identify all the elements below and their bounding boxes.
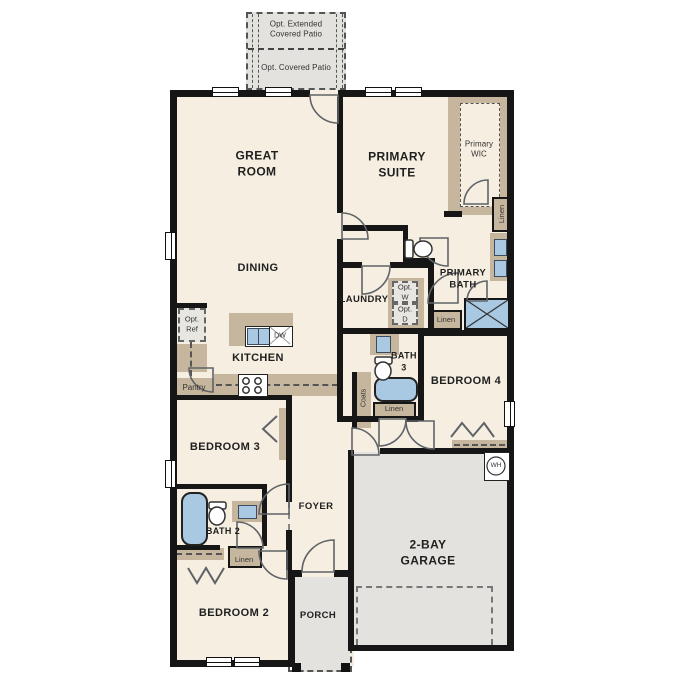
bath3-sink <box>376 336 391 353</box>
wall-center-upper <box>337 97 343 213</box>
bath2-tub <box>181 492 208 546</box>
wall-bedroom3-bath2 <box>170 484 267 489</box>
window-bedroom4 <box>504 401 515 427</box>
bedroom3-label: BEDROOM 3 <box>190 440 260 454</box>
bedroom4-label: BEDROOM 4 <box>431 374 501 388</box>
wall-foyer-left-a <box>286 400 292 502</box>
wall-bedroom2-right <box>288 570 295 667</box>
foyer-label: FOYER <box>299 501 334 513</box>
window-bedroom2-1 <box>206 657 232 667</box>
patio-covered-label: Opt. Covered Patio <box>261 63 331 73</box>
opt-ref-label: Opt. Ref <box>185 314 199 334</box>
primary-wic-label: Primary WIC <box>465 140 493 161</box>
porch-post-right <box>341 663 350 672</box>
water-heater-label: WH <box>491 462 502 470</box>
bath3-tub <box>374 377 418 402</box>
bath3-label: BATH 3 <box>391 350 417 373</box>
wall-bath2-right <box>262 489 267 546</box>
wall-coats-left <box>352 372 357 428</box>
window-primary-suite-2 <box>395 87 422 97</box>
linen-wic-label: Linen <box>497 205 507 223</box>
bath2-label: BATH 2 <box>206 526 240 538</box>
wall-garage-bottom <box>348 645 514 651</box>
linen-hall-label: Linen <box>385 404 403 414</box>
garage-label: 2-BAY GARAGE <box>400 537 455 568</box>
bedroom2-label: BEDROOM 2 <box>199 606 269 620</box>
opt-dryer-label: Opt. D <box>398 304 412 324</box>
linen-primary-bath-label: Linen <box>437 315 455 325</box>
window-great-room-1 <box>212 87 239 97</box>
wall-bath3-bottom-b <box>406 416 418 422</box>
bedroom4-closet-dashed-line <box>454 444 505 446</box>
primary-suite-label: PRIMARY SUITE <box>368 149 426 180</box>
counter-dashed-line <box>216 384 338 386</box>
wall-garage-left <box>348 450 354 651</box>
window-primary-suite-1 <box>365 87 392 97</box>
wall-left <box>170 90 177 667</box>
wall-laundry-top-a <box>337 262 362 268</box>
patio-post-line-right <box>336 14 343 88</box>
primary-sink-2 <box>494 260 507 277</box>
wall-front-left <box>292 570 302 577</box>
laundry-label: LAUNDRY <box>340 294 389 306</box>
dining-label: DINING <box>238 261 279 275</box>
kitchen-label: KITCHEN <box>232 351 284 365</box>
great-room-label: GREAT ROOM <box>235 148 278 179</box>
primary-bath-label: PRIMARY BATH <box>440 268 486 293</box>
coats-label: Coats <box>359 389 368 407</box>
pantry-cabinet <box>177 344 207 372</box>
primary-sink-1 <box>494 239 507 256</box>
window-great-room-2 <box>265 87 292 97</box>
pantry-label: Pantry <box>182 383 205 393</box>
stove <box>238 374 268 397</box>
wall-right <box>507 90 514 651</box>
patio-post-line-left <box>252 14 259 88</box>
garage-door-dashed-outline <box>356 586 493 645</box>
porch-label: PORCH <box>300 610 336 622</box>
wall-suite-bath <box>343 225 405 231</box>
window-bedroom3 <box>165 460 176 488</box>
wall-bedroom2-bottom <box>170 660 295 667</box>
wall-laundry-right <box>428 262 434 334</box>
pantry-dashed-line <box>190 342 192 376</box>
wall-wic-bottom <box>444 211 462 217</box>
bath2-sink <box>238 505 257 519</box>
window-dining <box>165 232 176 260</box>
wall-foyer-left-b <box>286 530 292 570</box>
linen-bath2-label: Linen <box>235 555 253 565</box>
patio-extended-label: Opt. Extended Covered Patio <box>270 20 322 41</box>
patio-divider-line <box>248 48 344 50</box>
wall-bedroom4-left <box>418 330 424 421</box>
dishwasher-label: DW <box>274 331 286 340</box>
opt-washer-label: Opt. W <box>398 282 412 302</box>
primary-shower <box>464 298 510 330</box>
wall-kitchen-bedroom3 <box>170 395 292 400</box>
floor-plan: Opt. Extended Covered Patio Opt. Covered… <box>0 0 687 687</box>
wall-bath3-bottom-a <box>343 416 379 422</box>
wall-refrigerator-stub <box>177 303 207 308</box>
bedroom2-closet-dashed-line <box>176 553 222 555</box>
window-bedroom2-2 <box>234 657 260 667</box>
hall-opening-dashed-line <box>288 502 290 530</box>
wall-bedroom4-top <box>424 330 507 336</box>
